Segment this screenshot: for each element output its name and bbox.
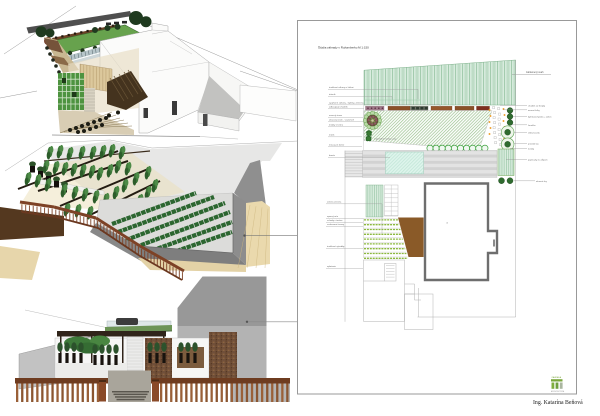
svg-text:ovocné kríky: ovocné kríky [528,109,541,112]
svg-text:trvalky: trvalky [528,147,535,150]
svg-text:odkvapový chodník: odkvapový chodník [329,107,349,109]
svg-text:oplotenie: oplotenie [327,265,337,268]
svg-text:popínavky na stĺpoch: popínavky na stĺpoch [528,158,548,161]
svg-text:okrasné kry: okrasné kry [536,180,548,183]
svg-text:višňa krovitá: višňa krovitá [528,131,540,134]
svg-text:ARCHITEKTÚRA: ARCHITEKTÚRA [551,390,565,393]
svg-text:trvalkové záhony s kríkmi: trvalkové záhony s kríkmi [329,86,354,89]
svg-text:terasa pri dome: terasa pri dome [329,144,345,147]
svg-text:teplomilné trvalky a kry: teplomilné trvalky a kry [374,138,397,141]
svg-text:trvalkové výsadby: trvalkové výsadby [327,245,345,248]
svg-text:bazén: bazén [329,155,336,157]
svg-text:oporný múr: oporný múr [327,215,338,218]
svg-text:Štúdia záhrady v Ružomberku M: Štúdia záhrady v Ružomberku M 1:150 [318,45,369,50]
svg-text:bylinková špirála + záhon: bylinková špirála + záhon [528,115,552,118]
svg-text:vyvýšené záhony - bylinky, zel: vyvýšené záhony - bylinky, zelenina [329,103,364,105]
svg-text:múrik: múrik [329,134,335,137]
svg-text:Ing. Katarína Beňová: Ing. Katarína Beňová [533,400,583,406]
svg-text:chodník zo štiepky: chodník zo štiepky [528,104,546,107]
svg-text:ZÁHRADA: ZÁHRADA [552,376,562,379]
svg-text:zelená strecha: zelená strecha [327,201,342,204]
svg-text:čerešňa: čerešňa [528,124,536,127]
svg-text:svahované terasy: svahované terasy [327,223,345,226]
svg-text:trávnik: trávnik [329,93,336,96]
svg-text:okrasný strom - viackmeň: okrasný strom - viackmeň [329,119,355,122]
svg-text:schody v teréne: schody v teréne [327,219,343,222]
svg-text:zatrávnený svah: zatrávnený svah [526,71,544,74]
svg-text:ovocný strom: ovocný strom [329,114,342,117]
svg-text:trvalky v kruhu: trvalky v kruhu [329,124,344,127]
svg-text:previslé kry: previslé kry [528,142,539,145]
